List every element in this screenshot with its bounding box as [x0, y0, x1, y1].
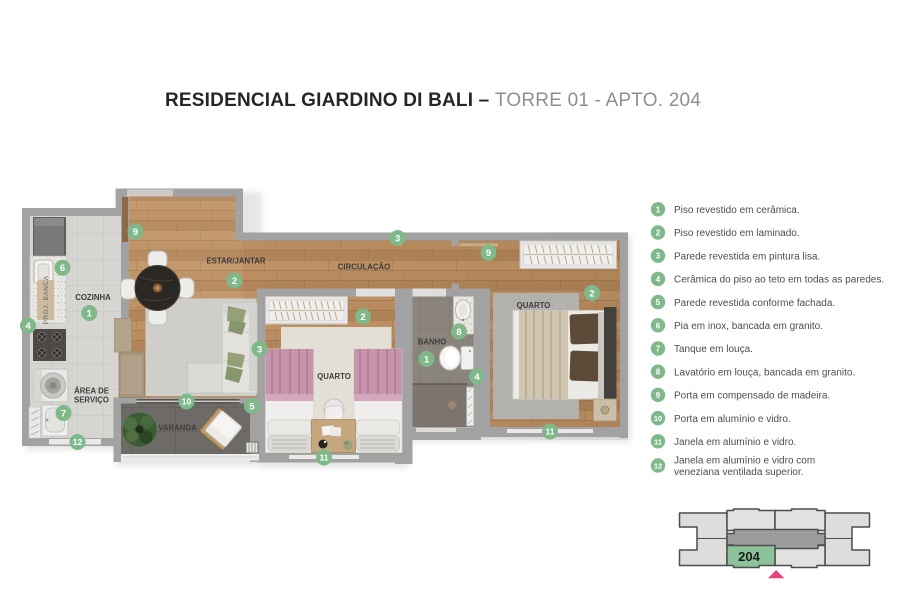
svg-text:2: 2 [232, 276, 237, 287]
svg-text:1: 1 [87, 308, 93, 319]
svg-text:ESTAR/JANTAR: ESTAR/JANTAR [206, 256, 265, 265]
svg-text:BANHO: BANHO [418, 337, 447, 346]
svg-text:12: 12 [73, 437, 83, 447]
svg-text:3: 3 [257, 344, 262, 355]
svg-text:Piso revestido em laminado.: Piso revestido em laminado. [674, 228, 800, 239]
svg-text:3: 3 [656, 252, 661, 261]
svg-text:3: 3 [395, 233, 400, 244]
svg-text:10: 10 [182, 397, 192, 407]
svg-text:ÁREA DE: ÁREA DE [74, 386, 109, 395]
svg-text:1: 1 [656, 205, 661, 214]
svg-text:2: 2 [589, 288, 594, 299]
svg-text:SERVIÇO: SERVIÇO [74, 395, 109, 404]
svg-text:11: 11 [320, 453, 329, 463]
svg-text:Pia em inox, bancada em granit: Pia em inox, bancada em granito. [674, 321, 823, 332]
svg-text:Porta em alumínio e vidro.: Porta em alumínio e vidro. [674, 414, 791, 425]
svg-text:Janela em alumínio e vidro com: Janela em alumínio e vidro com [674, 456, 815, 467]
svg-text:8: 8 [656, 368, 661, 377]
svg-text:VARANDA: VARANDA [158, 424, 197, 433]
svg-text:9: 9 [486, 248, 491, 259]
svg-text:9: 9 [656, 391, 661, 400]
svg-text:veneziana ventilada superior.: veneziana ventilada superior. [674, 467, 804, 478]
svg-text:8: 8 [456, 327, 461, 338]
svg-text:RESIDENCIAL GIARDINO DI BALI –: RESIDENCIAL GIARDINO DI BALI – TORRE 01 … [165, 90, 701, 111]
svg-text:Porta em compensado de madeira: Porta em compensado de madeira. [674, 391, 830, 402]
svg-text:9: 9 [133, 227, 138, 238]
svg-text:2: 2 [360, 312, 365, 323]
svg-text:QUARTO: QUARTO [517, 301, 551, 310]
svg-text:Lavatório em louça, bancada em: Lavatório em louça, bancada em granito. [674, 367, 855, 378]
svg-text:Piso revestido em cerâmica.: Piso revestido em cerâmica. [674, 205, 800, 216]
svg-text:12: 12 [654, 462, 662, 471]
svg-text:7: 7 [656, 345, 661, 354]
svg-text:PROJ. BANCA: PROJ. BANCA [43, 275, 50, 324]
svg-text:6: 6 [60, 263, 65, 274]
svg-text:4: 4 [25, 321, 31, 332]
svg-text:7: 7 [61, 408, 66, 419]
svg-text:Cerâmica do piso ao teto em to: Cerâmica do piso ao teto em todas as par… [674, 275, 884, 286]
svg-text:QUARTO: QUARTO [317, 372, 351, 381]
svg-text:204: 204 [738, 549, 760, 564]
svg-text:COZINHA: COZINHA [75, 293, 111, 302]
svg-text:4: 4 [474, 372, 480, 383]
svg-text:10: 10 [654, 414, 662, 423]
svg-text:5: 5 [656, 298, 661, 307]
svg-text:5: 5 [249, 401, 255, 412]
svg-text:11: 11 [654, 437, 662, 446]
svg-text:Parede revestida em pintura li: Parede revestida em pintura lisa. [674, 251, 820, 262]
svg-text:6: 6 [656, 321, 661, 330]
svg-text:Janela em alumínio e vidro.: Janela em alumínio e vidro. [674, 437, 796, 448]
svg-text:Tanque em louça.: Tanque em louça. [674, 344, 753, 355]
svg-text:11: 11 [546, 427, 555, 437]
svg-text:4: 4 [656, 275, 661, 284]
svg-text:2: 2 [656, 229, 661, 238]
svg-text:Parede revestida conforme fach: Parede revestida conforme fachada. [674, 298, 835, 309]
svg-text:1: 1 [424, 354, 430, 365]
svg-text:CIRCULAÇÃO: CIRCULAÇÃO [338, 262, 390, 271]
